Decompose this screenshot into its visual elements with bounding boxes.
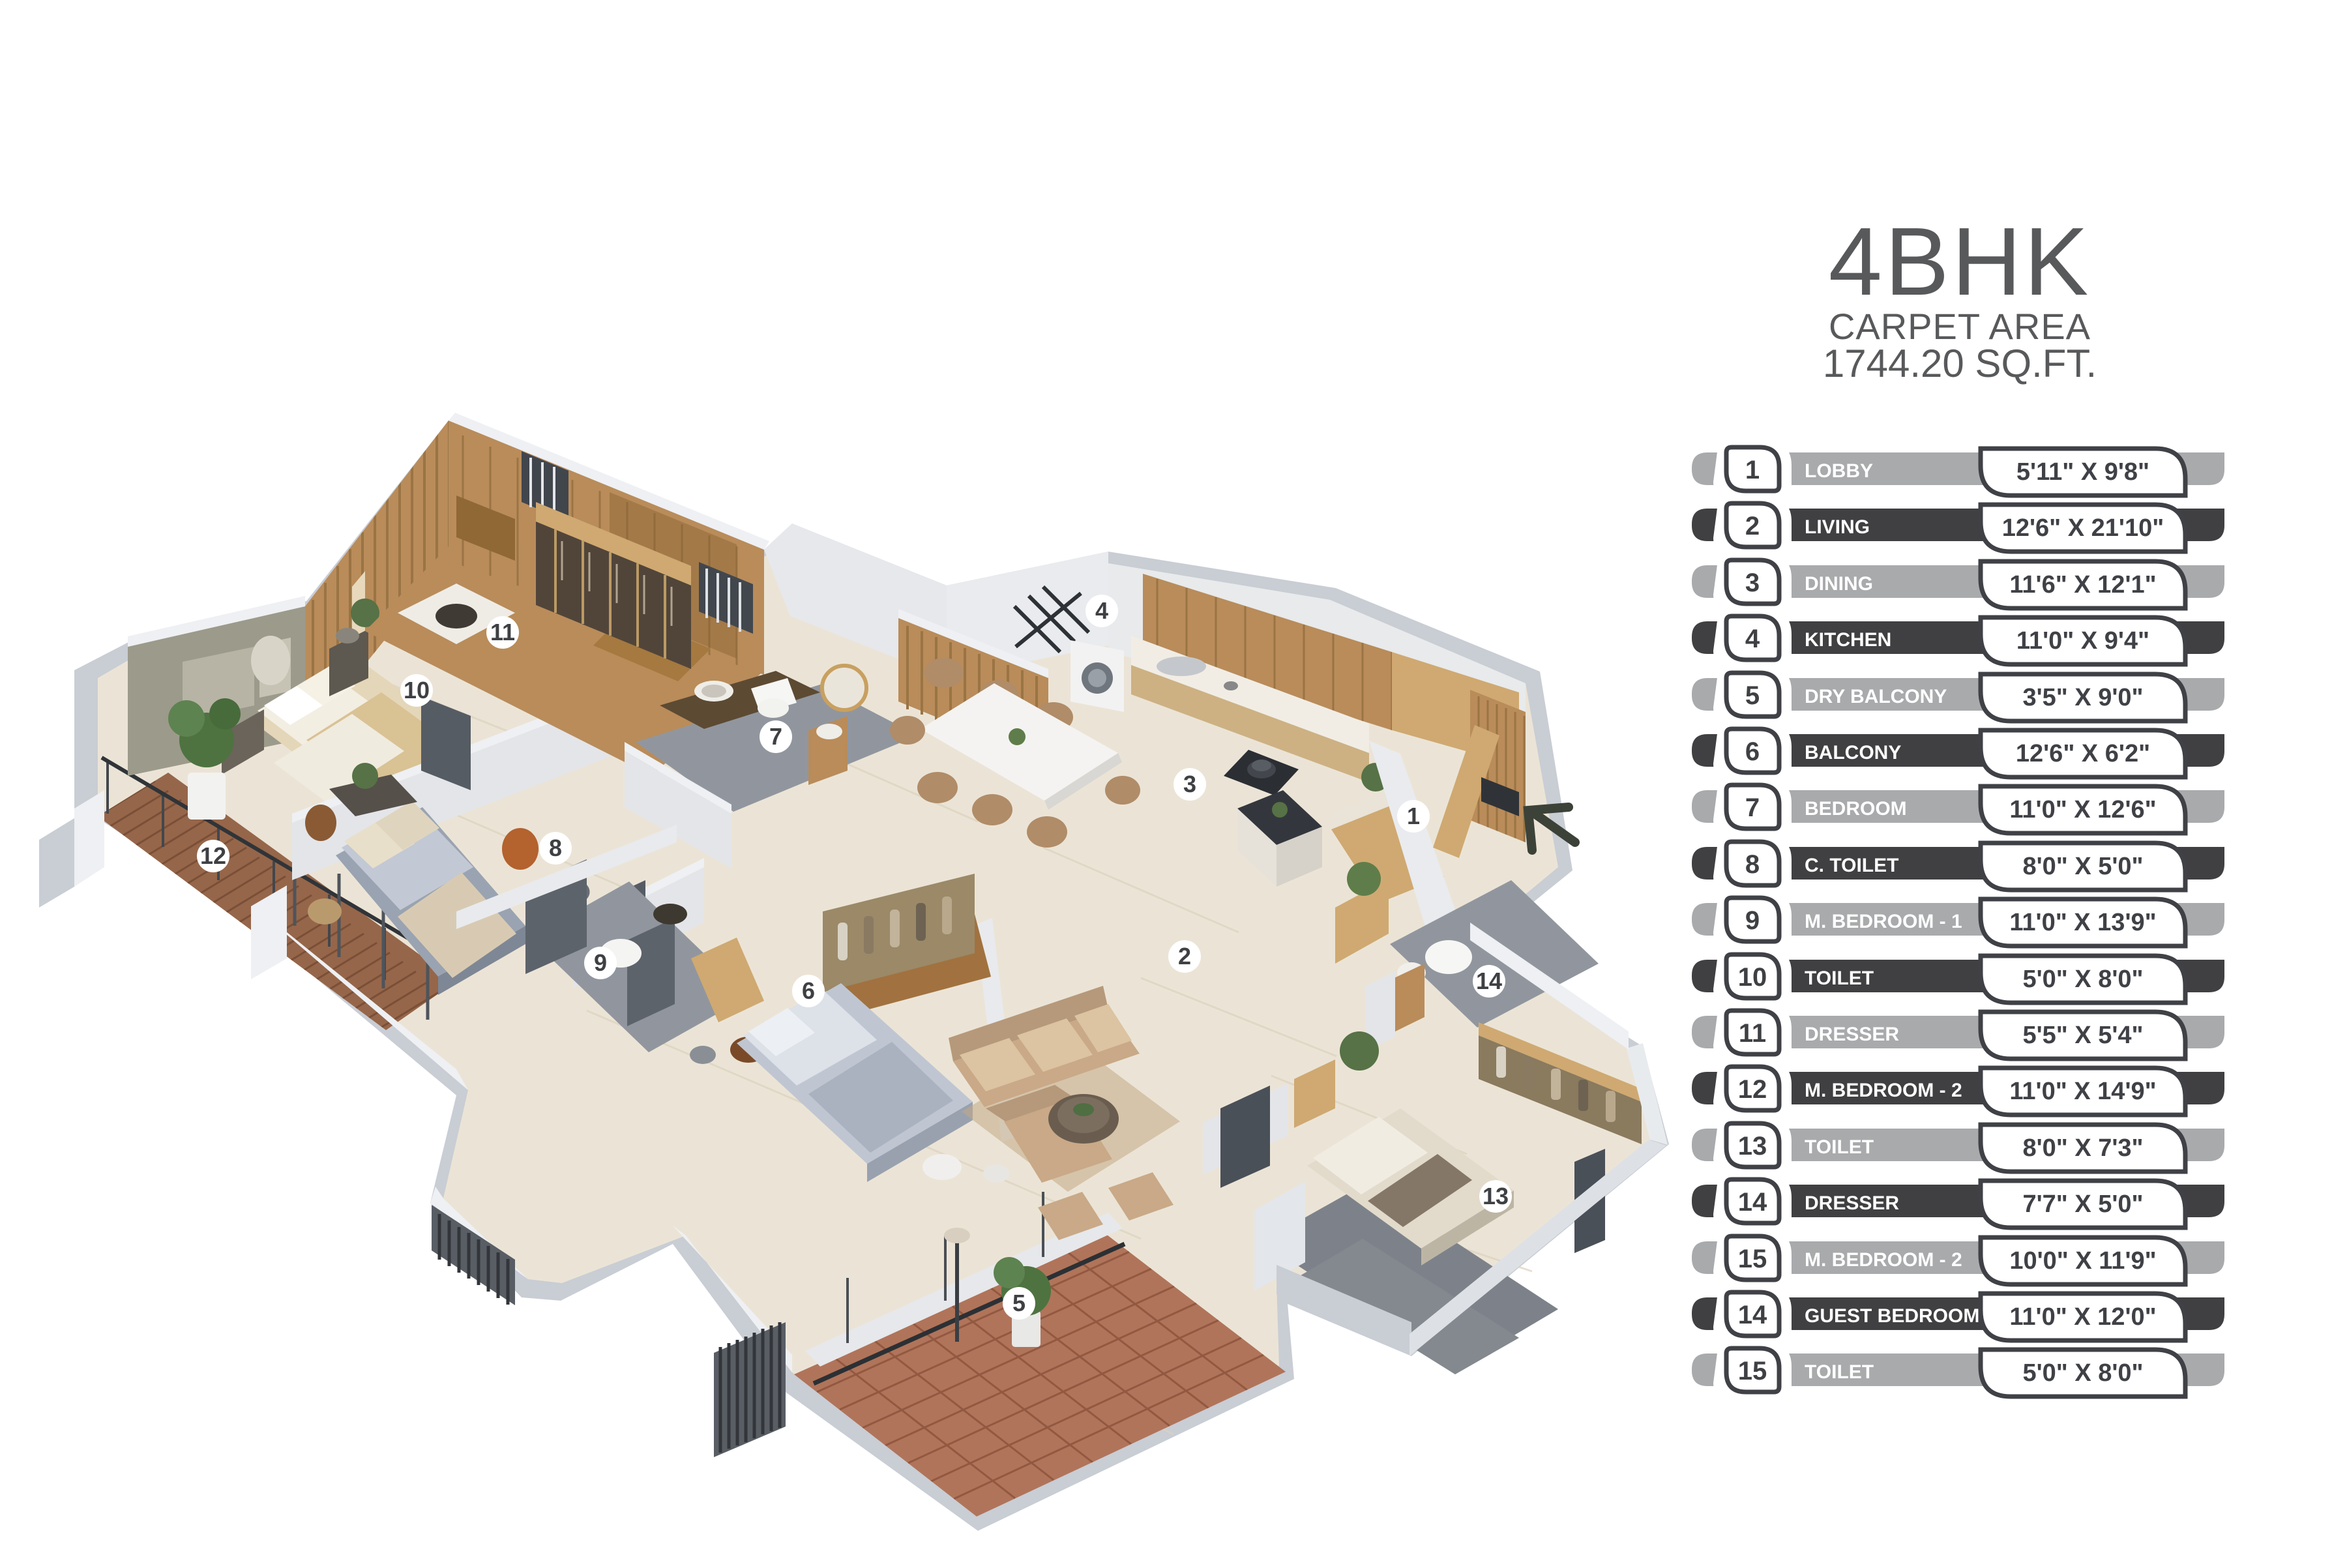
svg-text:14: 14 bbox=[1738, 1301, 1767, 1329]
svg-text:CARPET AREA: CARPET AREA bbox=[1829, 306, 2091, 347]
svg-text:8: 8 bbox=[1745, 850, 1760, 879]
svg-text:12'6" X 6'2": 12'6" X 6'2" bbox=[2016, 740, 2150, 767]
svg-text:7: 7 bbox=[769, 723, 782, 750]
svg-text:KITCHEN: KITCHEN bbox=[1805, 629, 1891, 651]
svg-text:8'0" X 7'3": 8'0" X 7'3" bbox=[2022, 1134, 2143, 1162]
svg-text:12'6" X 21'10": 12'6" X 21'10" bbox=[2002, 514, 2164, 542]
svg-text:13: 13 bbox=[1738, 1132, 1767, 1161]
svg-text:10: 10 bbox=[1738, 963, 1767, 992]
svg-text:3: 3 bbox=[1745, 569, 1760, 597]
svg-text:TOILET: TOILET bbox=[1805, 968, 1874, 989]
svg-text:5: 5 bbox=[1745, 681, 1760, 710]
svg-text:13: 13 bbox=[1483, 1183, 1509, 1209]
svg-text:11'0" X 12'0": 11'0" X 12'0" bbox=[2009, 1303, 2156, 1331]
svg-text:6: 6 bbox=[1745, 737, 1760, 766]
svg-text:TOILET: TOILET bbox=[1805, 1361, 1874, 1383]
svg-text:9: 9 bbox=[1745, 906, 1760, 935]
svg-text:12: 12 bbox=[200, 842, 226, 869]
svg-text:9: 9 bbox=[594, 949, 607, 976]
svg-text:10: 10 bbox=[404, 677, 430, 703]
svg-text:11: 11 bbox=[490, 619, 515, 645]
svg-text:7: 7 bbox=[1745, 793, 1760, 822]
svg-text:2: 2 bbox=[1745, 512, 1760, 540]
svg-text:15: 15 bbox=[1738, 1357, 1767, 1385]
svg-text:11'0" X 14'9": 11'0" X 14'9" bbox=[2009, 1078, 2156, 1105]
svg-text:BEDROOM: BEDROOM bbox=[1805, 798, 1907, 820]
svg-text:3: 3 bbox=[1183, 771, 1196, 797]
svg-text:5'11" X 9'8": 5'11" X 9'8" bbox=[2016, 458, 2149, 486]
svg-text:LOBBY: LOBBY bbox=[1805, 460, 1873, 482]
svg-text:C. TOILET: C. TOILET bbox=[1805, 855, 1898, 876]
svg-text:4: 4 bbox=[1095, 597, 1108, 624]
svg-text:11'0" X 13'9": 11'0" X 13'9" bbox=[2009, 909, 2156, 936]
svg-text:GUEST BEDROOM: GUEST BEDROOM bbox=[1805, 1305, 1979, 1327]
svg-text:1: 1 bbox=[1745, 456, 1760, 484]
svg-text:11'0" X 9'4": 11'0" X 9'4" bbox=[2016, 627, 2149, 655]
svg-text:11'0" X 12'6": 11'0" X 12'6" bbox=[2009, 796, 2156, 823]
svg-text:M. BEDROOM - 2: M. BEDROOM - 2 bbox=[1805, 1080, 1962, 1101]
svg-text:M. BEDROOM - 2: M. BEDROOM - 2 bbox=[1805, 1249, 1962, 1271]
svg-text:DRESSER: DRESSER bbox=[1805, 1192, 1899, 1214]
svg-text:DRY BALCONY: DRY BALCONY bbox=[1805, 686, 1947, 707]
svg-text:4: 4 bbox=[1745, 625, 1760, 653]
svg-text:5: 5 bbox=[1012, 1290, 1026, 1316]
svg-text:14: 14 bbox=[1476, 968, 1502, 994]
svg-text:BALCONY: BALCONY bbox=[1805, 742, 1901, 763]
svg-text:1744.20 SQ.FT.: 1744.20 SQ.FT. bbox=[1823, 342, 2097, 385]
svg-text:1: 1 bbox=[1407, 803, 1420, 829]
svg-text:3'5" X 9'0": 3'5" X 9'0" bbox=[2022, 684, 2143, 711]
svg-text:11'6" X 12'1": 11'6" X 12'1" bbox=[2009, 571, 2156, 599]
svg-text:12: 12 bbox=[1738, 1075, 1767, 1104]
svg-text:15: 15 bbox=[1738, 1245, 1767, 1273]
svg-text:14: 14 bbox=[1738, 1188, 1767, 1217]
svg-text:4BHK: 4BHK bbox=[1829, 208, 2091, 316]
svg-text:DRESSER: DRESSER bbox=[1805, 1024, 1899, 1045]
svg-text:6: 6 bbox=[802, 977, 815, 1004]
svg-text:DINING: DINING bbox=[1805, 573, 1873, 595]
svg-text:2: 2 bbox=[1178, 943, 1191, 969]
svg-text:5'0" X 8'0": 5'0" X 8'0" bbox=[2022, 966, 2143, 993]
svg-text:TOILET: TOILET bbox=[1805, 1136, 1874, 1158]
svg-text:5'0" X 8'0": 5'0" X 8'0" bbox=[2022, 1359, 2143, 1387]
svg-text:LIVING: LIVING bbox=[1805, 516, 1870, 538]
svg-text:10'0" X 11'9": 10'0" X 11'9" bbox=[2009, 1247, 2156, 1275]
svg-text:5'5" X 5'4": 5'5" X 5'4" bbox=[2022, 1022, 2143, 1049]
svg-text:M. BEDROOM - 1: M. BEDROOM - 1 bbox=[1805, 911, 1962, 932]
svg-text:8: 8 bbox=[549, 835, 562, 861]
svg-text:7'7" X 5'0": 7'7" X 5'0" bbox=[2022, 1191, 2143, 1218]
svg-text:11: 11 bbox=[1739, 1019, 1766, 1048]
svg-text:8'0" X 5'0": 8'0" X 5'0" bbox=[2022, 853, 2143, 880]
